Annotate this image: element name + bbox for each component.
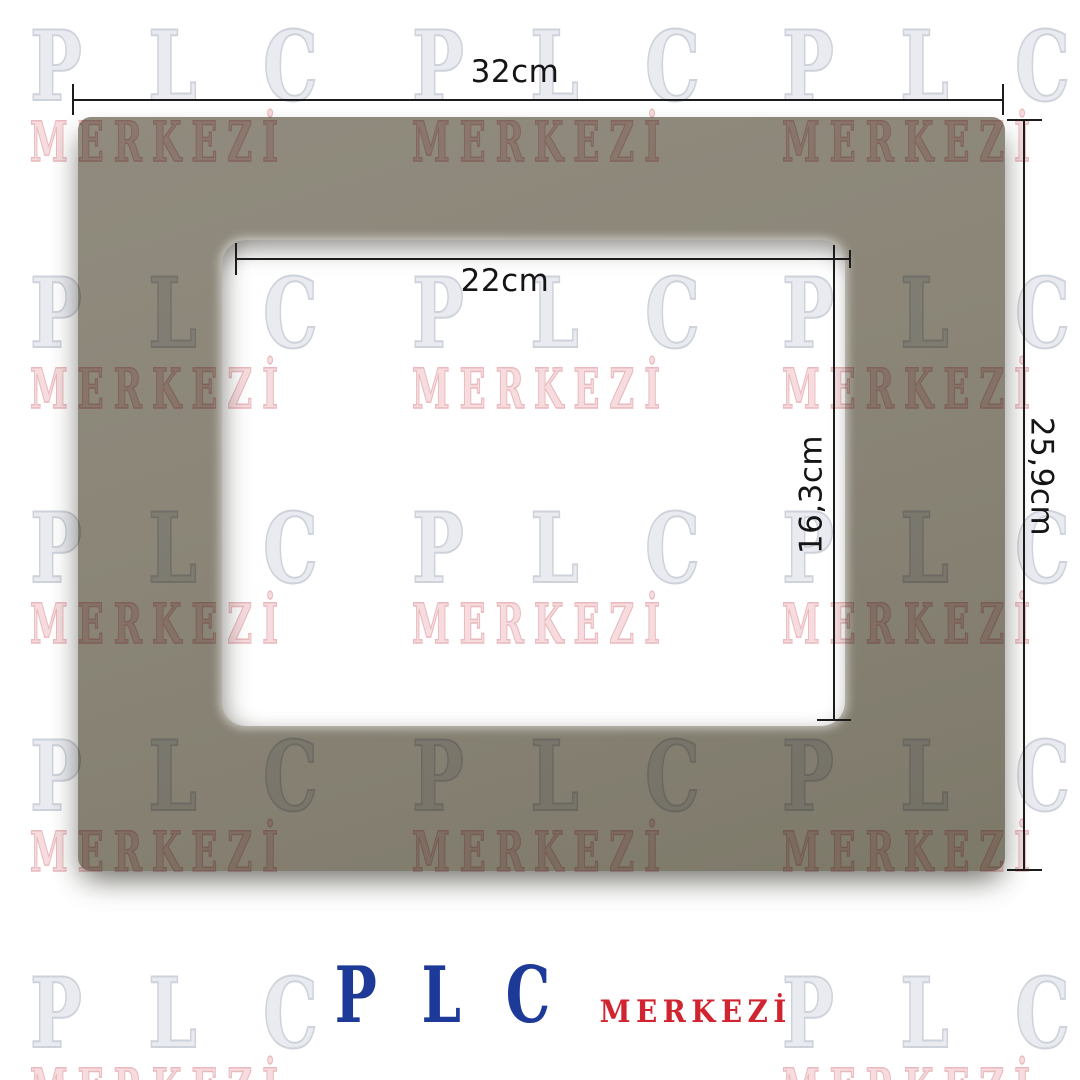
- inner-width-right-tick: [849, 250, 851, 268]
- brand-logo: PLC MERKEZİ: [0, 957, 1080, 1035]
- inner-width-left-tick: [235, 243, 237, 275]
- panel-frame: [78, 117, 1005, 871]
- outer-width-right-tick: [1002, 84, 1004, 115]
- inner-height-label: 16,3cm: [797, 395, 828, 595]
- outer-height-top-tick: [1007, 119, 1042, 121]
- inner-height-dimension-line: [833, 245, 835, 720]
- outer-height-label: 25,9cm: [1026, 377, 1057, 577]
- brand-logo-plc: PLC: [335, 957, 595, 1035]
- watermark-merkezi-text: MERKEZİ: [782, 1061, 1040, 1080]
- product-image: PLCMERKEZİPLCMERKEZİPLCMERKEZİPLCMERKEZİ…: [0, 0, 1080, 1080]
- outer-width-label: 32cm: [415, 57, 615, 88]
- inner-height-bottom-tick: [817, 719, 851, 721]
- watermark-merkezi-text: MERKEZİ: [30, 1061, 288, 1080]
- inner-width-dimension-line: [236, 258, 851, 260]
- frame-cutout: [222, 240, 845, 726]
- brand-logo-merkezi: MERKEZİ: [599, 997, 791, 1028]
- outer-width-left-tick: [72, 84, 74, 115]
- inner-width-label: 22cm: [405, 266, 605, 297]
- outer-height-bottom-tick: [1007, 869, 1042, 871]
- outer-width-dimension-line: [73, 99, 1003, 101]
